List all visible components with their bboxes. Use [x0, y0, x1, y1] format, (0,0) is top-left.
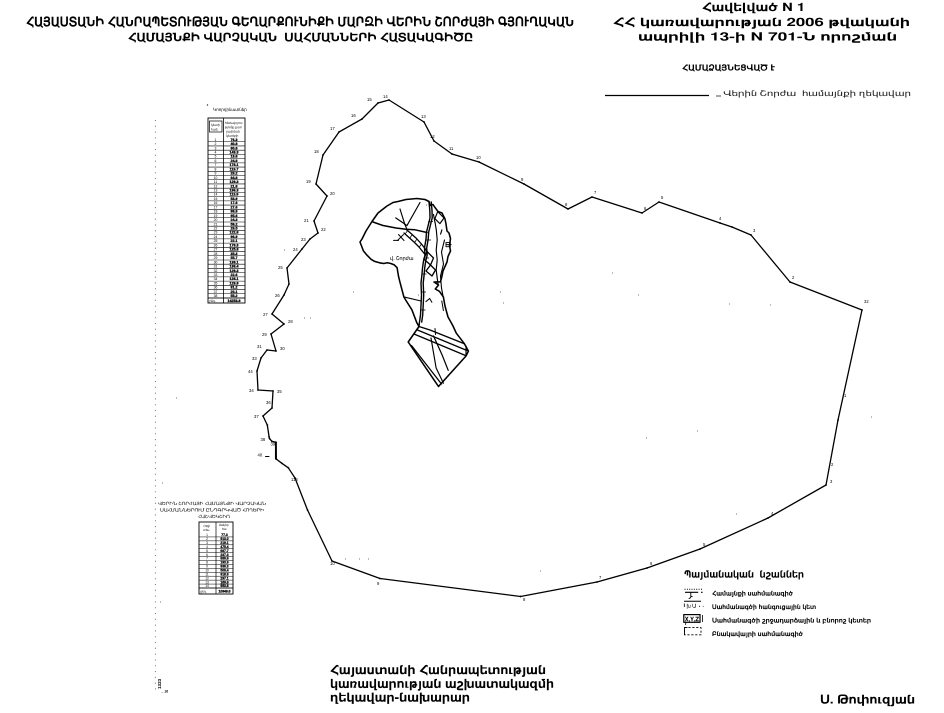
svg-text:40: 40	[258, 453, 263, 458]
svg-text:17: 17	[330, 126, 335, 131]
svg-text:16: 16	[351, 113, 356, 118]
svg-text:13: 13	[421, 114, 426, 119]
svg-text:44: 44	[248, 369, 253, 374]
svg-text:21: 21	[304, 218, 309, 223]
svg-text:55.2: 55.2	[231, 294, 238, 298]
svg-text:33: 33	[252, 356, 257, 361]
svg-text:39: 39	[271, 442, 276, 447]
svg-text:32: 32	[864, 299, 869, 304]
svg-text:14253.8: 14253.8	[228, 299, 241, 303]
svg-text:18: 18	[314, 149, 319, 154]
svg-text:10: 10	[330, 561, 335, 566]
svg-text:38: 38	[261, 437, 266, 442]
svg-text:27: 27	[263, 312, 268, 317]
svg-text:15: 15	[367, 97, 372, 102]
svg-text:23: 23	[301, 237, 306, 242]
svg-text:34: 34	[249, 388, 254, 393]
svg-text:29: 29	[262, 332, 267, 337]
svg-text:10949.0: 10949.0	[219, 590, 231, 594]
svg-text:24: 24	[293, 247, 298, 252]
svg-text:14: 14	[383, 94, 388, 99]
svg-text:1323: 1323	[157, 678, 162, 689]
svg-text:26: 26	[275, 293, 280, 298]
svg-text:37: 37	[254, 414, 259, 419]
svg-text:11: 11	[449, 146, 454, 151]
svg-text:19: 19	[306, 179, 311, 184]
svg-text:35: 35	[277, 389, 282, 394]
svg-text:31: 31	[257, 344, 262, 349]
svg-text:20: 20	[330, 191, 335, 196]
svg-text:25: 25	[278, 265, 283, 270]
svg-text:22: 22	[321, 227, 326, 232]
svg-text:113: 113	[291, 477, 298, 482]
svg-text:36: 36	[266, 400, 271, 405]
svg-text:12: 12	[430, 134, 435, 139]
svg-text:28: 28	[288, 319, 293, 324]
svg-text:.. 16: .. 16	[162, 690, 169, 694]
svg-text:10: 10	[476, 155, 481, 160]
svg-text:30: 30	[280, 346, 285, 351]
svg-text:38: 38	[214, 294, 218, 298]
